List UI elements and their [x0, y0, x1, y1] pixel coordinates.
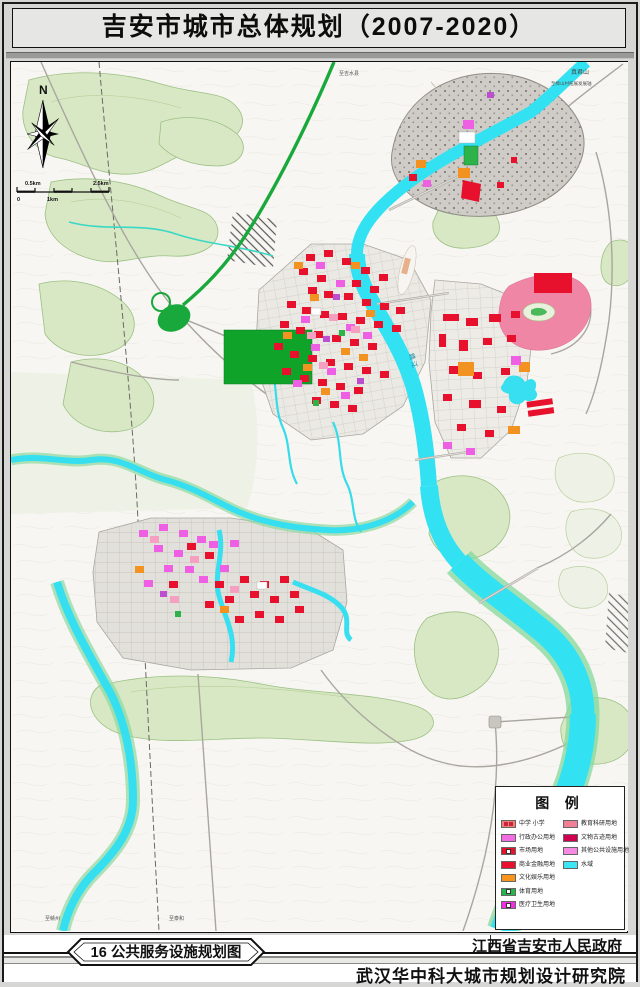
scale-label-end-km: 2.5km	[93, 181, 109, 187]
label-to-taihe: 至泰和	[169, 915, 184, 922]
label-mountain-ne: 真君山	[571, 68, 589, 76]
title-divider	[6, 52, 634, 59]
figure-number-badge: 16 公共服务设施规划图	[66, 937, 266, 967]
legend-item-commercial-finance: 商业金融用地	[501, 861, 559, 869]
facility-glyph	[506, 889, 511, 894]
other-public-swatch	[563, 847, 578, 855]
scale-label-one-km: 1km	[47, 197, 58, 203]
sports-swatch	[501, 888, 516, 896]
legend-item-culture-entertainment: 文化娱乐用地	[501, 874, 559, 882]
crossroads-node	[489, 716, 501, 728]
water-swatch	[563, 861, 578, 869]
admin-office-swatch	[501, 834, 516, 842]
schools-swatch	[501, 820, 516, 828]
facility-glyph	[506, 849, 511, 854]
legend-right-column: 教育科研用地 文物古迹用地 其他公共设施用地 水域	[563, 820, 619, 909]
market-swatch	[501, 847, 516, 855]
legend-item-medical-health: 医疗卫生用地	[501, 901, 559, 909]
map-panel: N 0.5km 2.5km 0 1km 真君山 至樟山村拓展发展轴 至吉水县 赣…	[10, 61, 628, 933]
legend-item-sports: 体育用地	[501, 888, 559, 896]
heritage-swatch	[563, 834, 578, 842]
commercial-finance-swatch	[501, 861, 516, 869]
page-title: 吉安市城市总体规划（2007-2020）	[12, 8, 626, 48]
legend-item-other-public: 其他公共设施用地	[563, 847, 619, 855]
legend-left-column: 中学 小学 行政办公用地 市场用地 商业金融用地 文化娱乐用地 体育用地	[501, 820, 559, 909]
facility-glyph	[506, 903, 511, 908]
figure-badge-label: 16 公共服务设施规划图	[91, 943, 242, 961]
legend-item-schools: 中学 小学	[501, 820, 559, 828]
legend-item-admin-office: 行政办公用地	[501, 834, 559, 842]
legend-item-heritage: 文物古迹用地	[563, 834, 619, 842]
culture-entertainment-swatch	[501, 874, 516, 882]
scale-label-half-km: 0.5km	[25, 181, 41, 187]
scale-label-zero: 0	[17, 197, 20, 203]
legend-item-education-research: 教育科研用地	[563, 820, 619, 828]
medical-health-swatch	[501, 901, 516, 909]
label-to-ganzhou: 至赣州	[45, 915, 60, 922]
map-legend: 图 例 中学 小学 行政办公用地 市场用地 商业金融用地 文化娱乐用地	[495, 786, 625, 930]
compass-north-label: N	[39, 83, 48, 97]
label-to-jishui: 至吉水县	[339, 70, 359, 77]
label-ne-axis: 至樟山村拓展发展轴	[551, 80, 592, 87]
title-block-footer: 江西省吉安市人民政府 武汉华中科大城市规划设计研究院 16 公共服务设施规划图	[4, 935, 636, 982]
institute-credit: 武汉华中科大城市规划设计研究院	[356, 962, 626, 987]
legend-title: 图 例	[501, 793, 619, 813]
government-credit: 江西省吉安市人民政府	[472, 935, 622, 956]
legend-item-market: 市场用地	[501, 847, 559, 855]
legend-item-water: 水域	[563, 861, 619, 869]
hatched-area	[227, 212, 277, 268]
education-research-swatch	[563, 820, 578, 828]
